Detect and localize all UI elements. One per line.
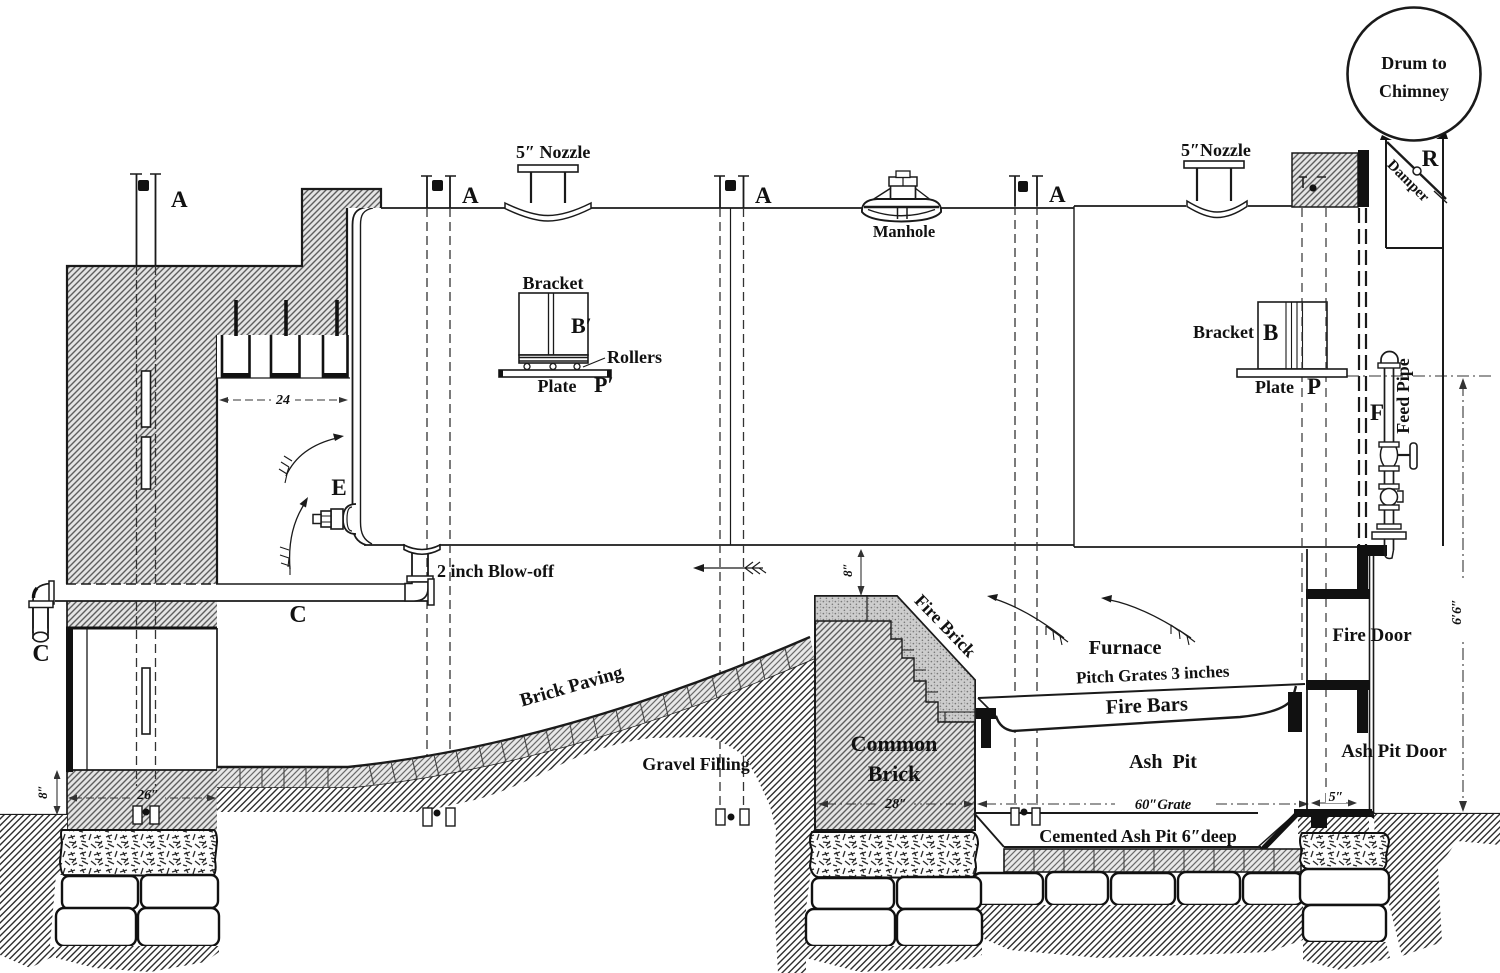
svg-text:Brick: Brick — [868, 761, 921, 786]
svg-text:C: C — [32, 641, 49, 667]
svg-text:P′: P′ — [594, 372, 614, 397]
svg-text:6′6″: 6′6″ — [1450, 599, 1465, 625]
svg-text:Ash Pit: Ash Pit — [1129, 751, 1197, 773]
svg-text:60″Grate: 60″Grate — [1135, 797, 1192, 813]
svg-text:28″: 28″ — [884, 797, 907, 812]
svg-text:Common: Common — [851, 731, 938, 756]
svg-text:5″: 5″ — [1329, 790, 1344, 805]
svg-text:B: B — [1263, 320, 1278, 345]
svg-text:Feed Pipe: Feed Pipe — [1393, 358, 1413, 433]
svg-text:8″: 8″ — [840, 563, 855, 577]
svg-text:B′: B′ — [571, 313, 592, 338]
svg-text:Drum to: Drum to — [1381, 53, 1447, 73]
svg-text:2 inch Blow-off: 2 inch Blow-off — [437, 561, 555, 581]
svg-text:Bracket: Bracket — [523, 273, 584, 293]
svg-text:8″: 8″ — [35, 785, 50, 799]
svg-text:Fire Bars: Fire Bars — [1105, 693, 1188, 718]
svg-text:E: E — [331, 475, 346, 500]
svg-text:R: R — [1422, 146, 1439, 171]
svg-text:Chimney: Chimney — [1379, 81, 1449, 101]
svg-text:A: A — [171, 187, 188, 212]
svg-text:Plate: Plate — [538, 376, 577, 396]
svg-text:5″Nozzle: 5″Nozzle — [1181, 140, 1251, 160]
svg-text:Rollers: Rollers — [607, 347, 662, 367]
svg-text:Cemented Ash Pit 6″deep: Cemented Ash Pit 6″deep — [1039, 826, 1236, 846]
svg-text:A: A — [755, 183, 772, 208]
svg-text:Plate: Plate — [1255, 377, 1294, 397]
svg-text:Fire Door: Fire Door — [1332, 625, 1412, 646]
svg-text:Manhole: Manhole — [873, 222, 935, 241]
svg-text:Ash Pit Door: Ash Pit Door — [1341, 741, 1447, 762]
svg-text:A: A — [1049, 182, 1066, 207]
svg-text:26″: 26″ — [136, 788, 159, 803]
svg-text:5″ Nozzle: 5″ Nozzle — [516, 142, 590, 162]
svg-text:Furnace: Furnace — [1089, 637, 1162, 659]
svg-text:A: A — [462, 183, 479, 208]
svg-text:F: F — [1370, 400, 1384, 425]
svg-text:24: 24 — [275, 393, 290, 408]
svg-text:C: C — [289, 602, 306, 628]
svg-text:P: P — [1307, 374, 1321, 399]
svg-text:Gravel Filling: Gravel Filling — [642, 754, 750, 774]
svg-text:Bracket: Bracket — [1193, 322, 1254, 342]
